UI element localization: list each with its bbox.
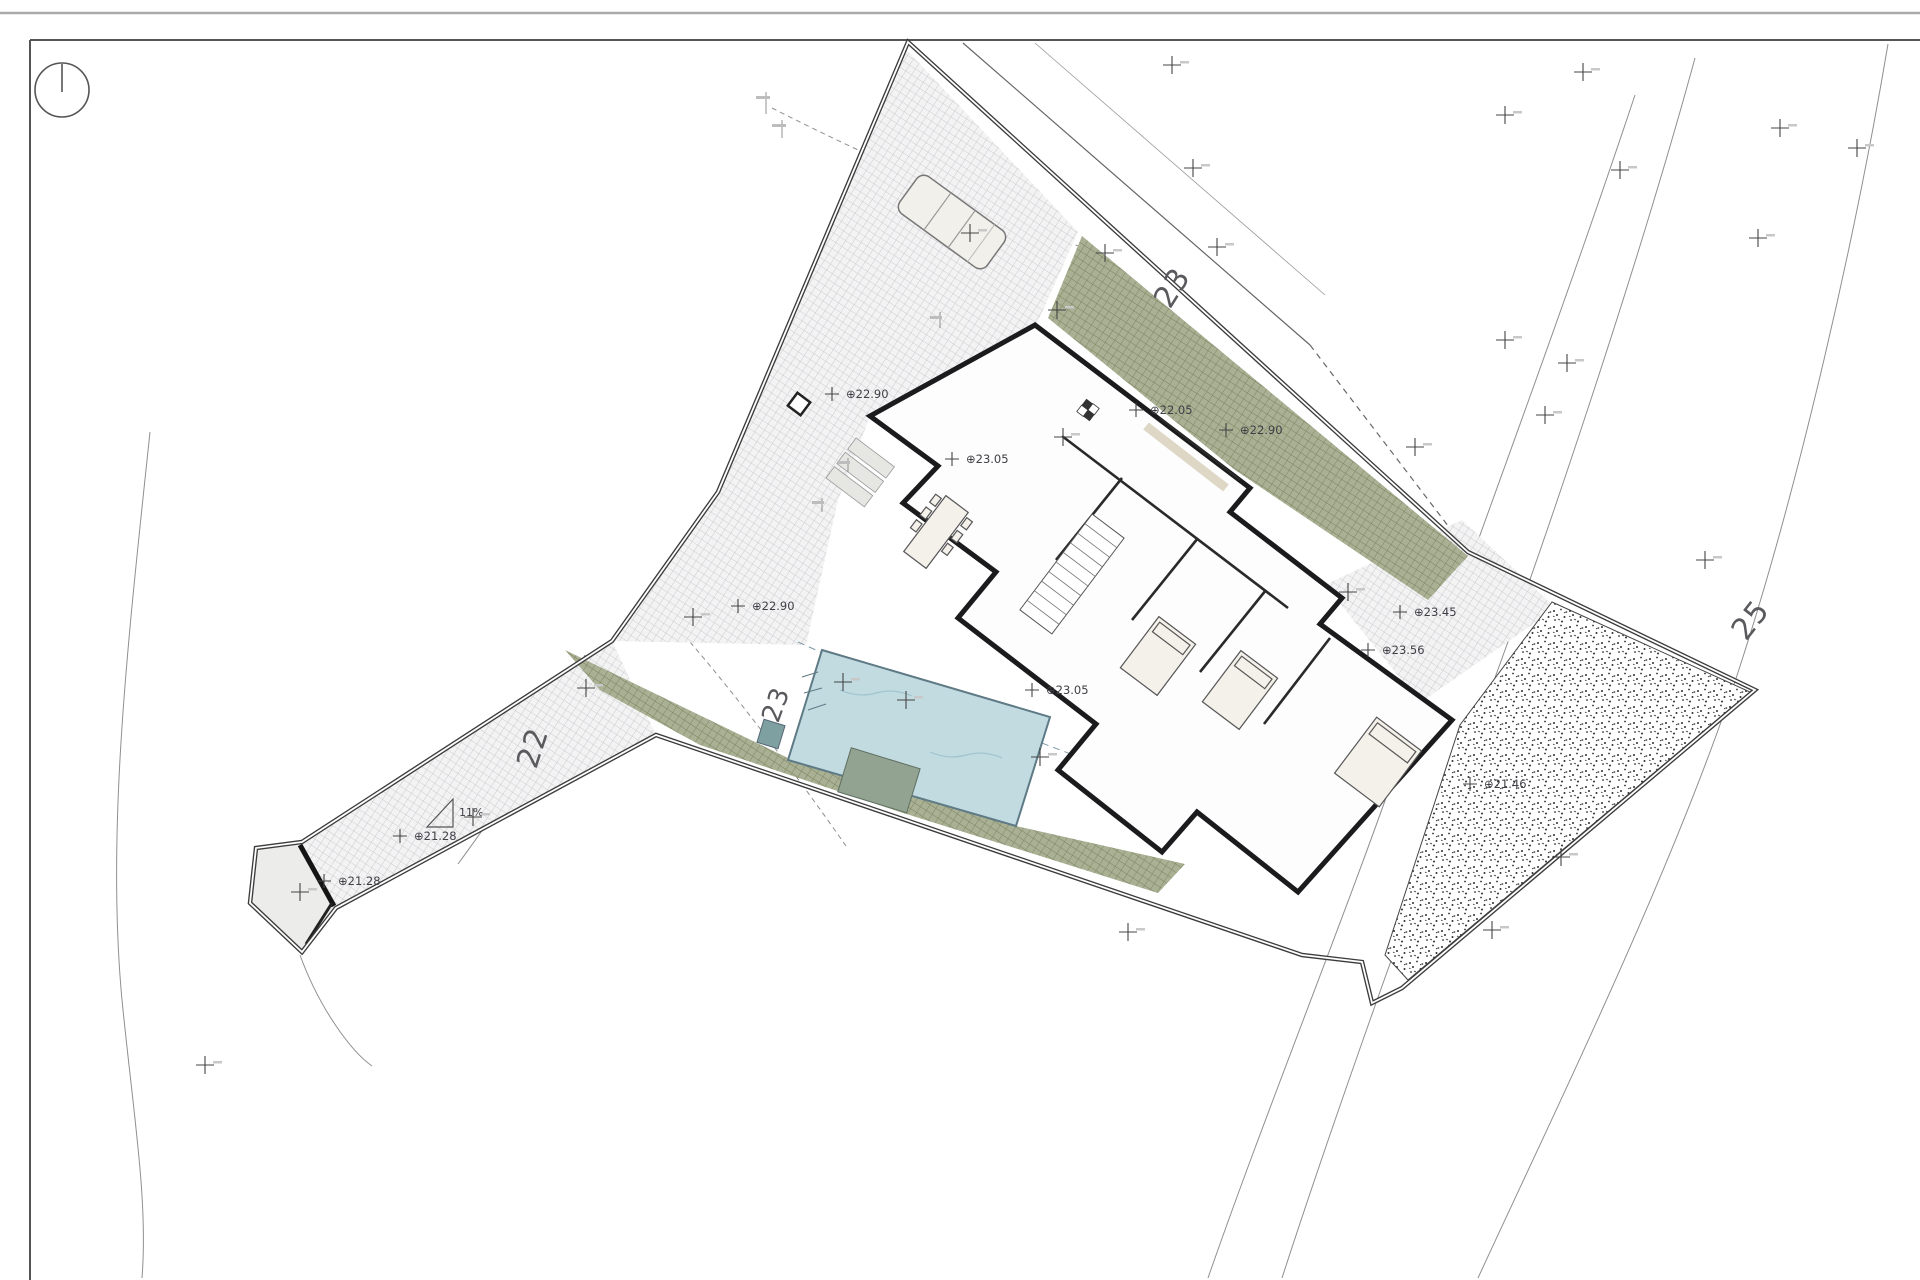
- elevation-value: ⊕21.28: [414, 829, 457, 843]
- survey-cross: [1119, 923, 1137, 941]
- elevation-value: ⊕23.45: [1414, 605, 1457, 619]
- survey-cross: [1611, 161, 1629, 179]
- elevation-value: ⊕22.90: [1240, 423, 1283, 437]
- survey-cross-tag: [1048, 753, 1057, 756]
- survey-cross-tag: [1136, 928, 1145, 931]
- survey-cross: [1536, 406, 1554, 424]
- survey-cross: [1558, 354, 1576, 372]
- survey-cross-tag: [1500, 926, 1509, 929]
- survey-cross-tag: [1766, 234, 1775, 237]
- survey-cross-tag: [213, 1061, 222, 1064]
- survey-cross-tag: [1356, 588, 1365, 591]
- elevation-value: ⊕21.46: [1484, 777, 1527, 791]
- survey-cross-tag: [1113, 249, 1122, 252]
- elevation-value: ⊕22.90: [752, 599, 795, 613]
- survey-cross-tag: [308, 888, 317, 891]
- survey-cross: [1496, 106, 1514, 124]
- elevation-value: ⊕23.05: [1046, 683, 1089, 697]
- survey-cross-tag: [1513, 111, 1522, 114]
- survey-cross-tag: [1865, 144, 1874, 147]
- survey-cross-tag: [594, 684, 603, 687]
- survey-cross: [1406, 438, 1424, 456]
- survey-cross-tag: [1569, 853, 1578, 856]
- survey-cross-tag: [1553, 411, 1562, 414]
- survey-cross-tag: [1591, 68, 1600, 71]
- survey-cross: [1208, 238, 1226, 256]
- survey-cross-tag: [914, 696, 923, 699]
- elevation-value: ⊕23.05: [966, 452, 1009, 466]
- survey-cross-tag: [701, 613, 710, 616]
- survey-cross-tag: [1788, 124, 1797, 127]
- drawing-sheet: 11% ⊕22.90⊕23.05⊕22.05⊕22.90⊕22.90⊕23.05…: [0, 0, 1920, 1280]
- survey-cross-tag: [1225, 243, 1234, 246]
- survey-cross-tag: [1201, 164, 1210, 167]
- survey-cross: [196, 1056, 214, 1074]
- survey-cross-tag: [1180, 61, 1189, 64]
- survey-cross: [1574, 63, 1592, 81]
- elevation-value: ⊕22.90: [846, 387, 889, 401]
- contour-label: 25: [1725, 594, 1777, 647]
- elevation-value: ⊕21.28: [338, 874, 381, 888]
- elevation-value: ⊕22.05: [1150, 403, 1193, 417]
- survey-cross-tag: [481, 813, 490, 816]
- survey-cross-tag: [1575, 359, 1584, 362]
- contour-label: 23: [756, 683, 796, 726]
- survey-cross: [1163, 56, 1181, 74]
- survey-cross-tag: [851, 678, 860, 681]
- survey-cross: [1749, 229, 1767, 247]
- elevation-label: ⊕23.56: [1361, 643, 1425, 657]
- survey-cross-tag: [1071, 433, 1080, 436]
- survey-cross: [1848, 139, 1866, 157]
- survey-cross-tag: [1513, 336, 1522, 339]
- survey-cross-tag: [1423, 443, 1432, 446]
- elevation-cross: [1025, 683, 1039, 697]
- survey-cross-tag: [1713, 556, 1722, 559]
- survey-cross: [1483, 921, 1501, 939]
- site-plan-drawing: 11% ⊕22.90⊕23.05⊕22.05⊕22.90⊕22.90⊕23.05…: [0, 0, 1920, 1280]
- survey-cross-tag: [1065, 306, 1074, 309]
- survey-cross-tag: [1628, 166, 1637, 169]
- survey-cross: [1771, 119, 1789, 137]
- elevation-value: ⊕23.56: [1382, 643, 1425, 657]
- survey-cross: [1496, 331, 1514, 349]
- survey-cross-tag: [978, 229, 987, 232]
- survey-cross: [1696, 551, 1714, 569]
- elevation-label: ⊕23.05: [1025, 683, 1089, 697]
- north-arrow-icon: [35, 63, 89, 117]
